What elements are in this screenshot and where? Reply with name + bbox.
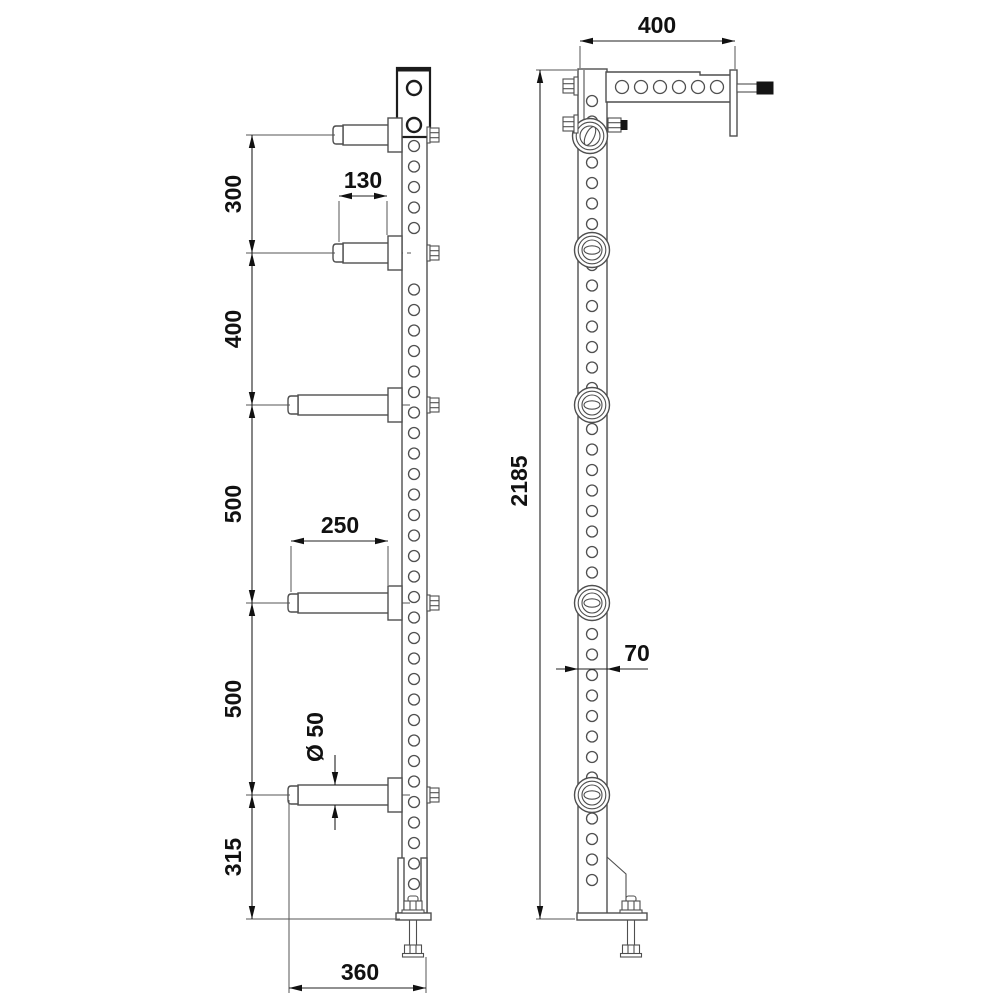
post-hole [409, 387, 420, 398]
peg-cylinder [298, 785, 389, 805]
dimension-arrow [291, 538, 304, 544]
post-hole [409, 817, 420, 828]
post-hole [409, 715, 420, 726]
peg-bolt [430, 398, 439, 412]
post-hole [587, 649, 598, 660]
dimension-arrow [332, 805, 338, 818]
dimension-arrow [339, 193, 352, 199]
post-hole [587, 342, 598, 353]
dimension-label: 500 [220, 485, 246, 523]
peg-bolt [430, 128, 439, 142]
post-hole [587, 526, 598, 537]
post-hole [587, 178, 598, 189]
collar-nut [608, 118, 621, 132]
dimension-arrow [332, 772, 338, 785]
post-hole [587, 834, 598, 845]
side-bolt [563, 117, 574, 131]
dimension-label: 360 [341, 959, 379, 985]
front-anchor-bolt-washer [402, 910, 424, 913]
post-hole [409, 858, 420, 869]
collar-hub [584, 791, 600, 799]
post-hole [587, 301, 598, 312]
post-hole [409, 428, 420, 439]
dimension-arrow [607, 666, 620, 672]
post-hole [587, 567, 598, 578]
dimension-label: 315 [220, 838, 246, 877]
post-hole [409, 448, 420, 459]
post-hole [587, 813, 598, 824]
front-anchor-bolt-plate [396, 913, 431, 920]
post-hole [409, 838, 420, 849]
dimension-arrow [249, 392, 255, 405]
dimension-arrow [289, 985, 302, 991]
post-hole [409, 530, 420, 541]
peg-base-block [388, 236, 402, 270]
post-hole [409, 182, 420, 193]
peg-cylinder [298, 395, 389, 415]
peg-base-block [388, 586, 402, 620]
post-hole [587, 321, 598, 332]
post-hole [409, 571, 420, 582]
post-hole [587, 219, 598, 230]
anchor-pin-head [757, 82, 773, 94]
post-hole [409, 735, 420, 746]
side-bolt-washer [574, 77, 578, 95]
post-hole [409, 592, 420, 603]
arm-hole [692, 81, 705, 94]
dimension-arrow [580, 38, 593, 44]
peg-base-block [388, 778, 402, 812]
post-hole [587, 547, 598, 558]
side-bolt-washer [574, 115, 578, 133]
dimension-arrow [722, 38, 735, 44]
post-hole [409, 879, 420, 890]
post-hole [587, 485, 598, 496]
post-hole [409, 325, 420, 336]
dimension-arrow [537, 70, 543, 83]
post-hole [587, 854, 598, 865]
dimension-label: 400 [638, 12, 676, 38]
collar-hub [584, 599, 600, 607]
front-anchor-bolt-head-washer [403, 954, 424, 958]
wall-plate [730, 70, 737, 136]
side-view [563, 69, 773, 957]
dimension-arrow [249, 795, 255, 808]
post-hole [587, 362, 598, 373]
peg-bolt [430, 246, 439, 260]
post-hole [587, 424, 598, 435]
post-hole [587, 465, 598, 476]
dimension-arrow [413, 985, 426, 991]
technical-drawing: 400218530040050050031513025036070Ø 50 [0, 0, 1000, 1000]
post-hole [587, 96, 598, 107]
side-anchor-bolt-head-washer [621, 954, 642, 958]
post-hole [409, 161, 420, 172]
post-hole [587, 670, 598, 681]
post-hole [587, 280, 598, 291]
post-hole [409, 797, 420, 808]
post-hole [409, 284, 420, 295]
plate-mounting-hole [407, 81, 421, 95]
side-anchor-bolt-washer [620, 910, 642, 913]
post-hole [409, 776, 420, 787]
post-hole [409, 346, 420, 357]
post-hole [409, 489, 420, 500]
dimension-arrow [375, 538, 388, 544]
post-hole [409, 633, 420, 644]
front-foot-gusset [398, 858, 404, 913]
dimension-arrow [249, 782, 255, 795]
anchor-pin-shaft [737, 84, 758, 92]
drawing-canvas: 400218530040050050031513025036070Ø 50 [0, 0, 1000, 1000]
post-hole [587, 506, 598, 517]
dimension-label: 130 [344, 167, 382, 193]
post-hole [409, 510, 420, 521]
collar-hub [584, 401, 600, 409]
peg-base-block [388, 388, 402, 422]
dimension-annotations: 400218530040050050031513025036070Ø 50 [220, 12, 735, 993]
arm-hole [673, 81, 686, 94]
peg-bolt [430, 788, 439, 802]
dimension-arrow [249, 405, 255, 418]
post-hole [587, 752, 598, 763]
post-hole [409, 305, 420, 316]
post-hole [409, 469, 420, 480]
dimension-label: 70 [624, 640, 650, 666]
dimension-label: 250 [321, 512, 359, 538]
post-hole [409, 223, 420, 234]
arm-hole [616, 81, 629, 94]
arm-hole [711, 81, 724, 94]
post-hole [409, 653, 420, 664]
dimension-arrow [374, 193, 387, 199]
post-hole [587, 711, 598, 722]
peg-bolt [430, 596, 439, 610]
peg-cylinder [343, 125, 389, 145]
post-hole [409, 366, 420, 377]
peg-cylinder [298, 593, 389, 613]
collar-nut-tip [621, 121, 627, 130]
post-hole [587, 198, 598, 209]
dimension-arrow [249, 253, 255, 266]
dimension-arrow [249, 906, 255, 919]
post-hole [587, 690, 598, 701]
post-hole [587, 444, 598, 455]
dimension-arrow [249, 135, 255, 148]
dimension-label: 400 [220, 310, 246, 348]
peg-base-block [388, 118, 402, 152]
dimension-arrow [249, 590, 255, 603]
post-hole [409, 141, 420, 152]
arm-hole [654, 81, 667, 94]
post-hole [409, 202, 420, 213]
front-view [288, 68, 439, 957]
dimension-arrow [537, 906, 543, 919]
post-hole [587, 731, 598, 742]
side-anchor-bolt-head [623, 945, 640, 954]
arm-hole [635, 81, 648, 94]
post-hole [409, 407, 420, 418]
post-hole [409, 612, 420, 623]
side-anchor-bolt-plate [577, 913, 647, 920]
collar-hub [584, 246, 600, 254]
dimension-arrow [249, 240, 255, 253]
post-hole [409, 756, 420, 767]
dimension-label: 300 [220, 175, 246, 213]
dimension-label: Ø 50 [302, 712, 328, 762]
post-hole [409, 674, 420, 685]
post-hole [587, 629, 598, 640]
side-bolt [563, 79, 574, 93]
post-hole [409, 551, 420, 562]
front-anchor-bolt-head [405, 945, 422, 954]
dimension-arrow [565, 666, 578, 672]
peg-cylinder [343, 243, 389, 263]
dimension-label: 500 [220, 680, 246, 718]
dimension-label: 2185 [506, 455, 532, 506]
post-hole [409, 694, 420, 705]
dimension-arrow [249, 603, 255, 616]
post-hole [587, 157, 598, 168]
plate-mounting-hole [407, 118, 421, 132]
post-hole [587, 875, 598, 886]
